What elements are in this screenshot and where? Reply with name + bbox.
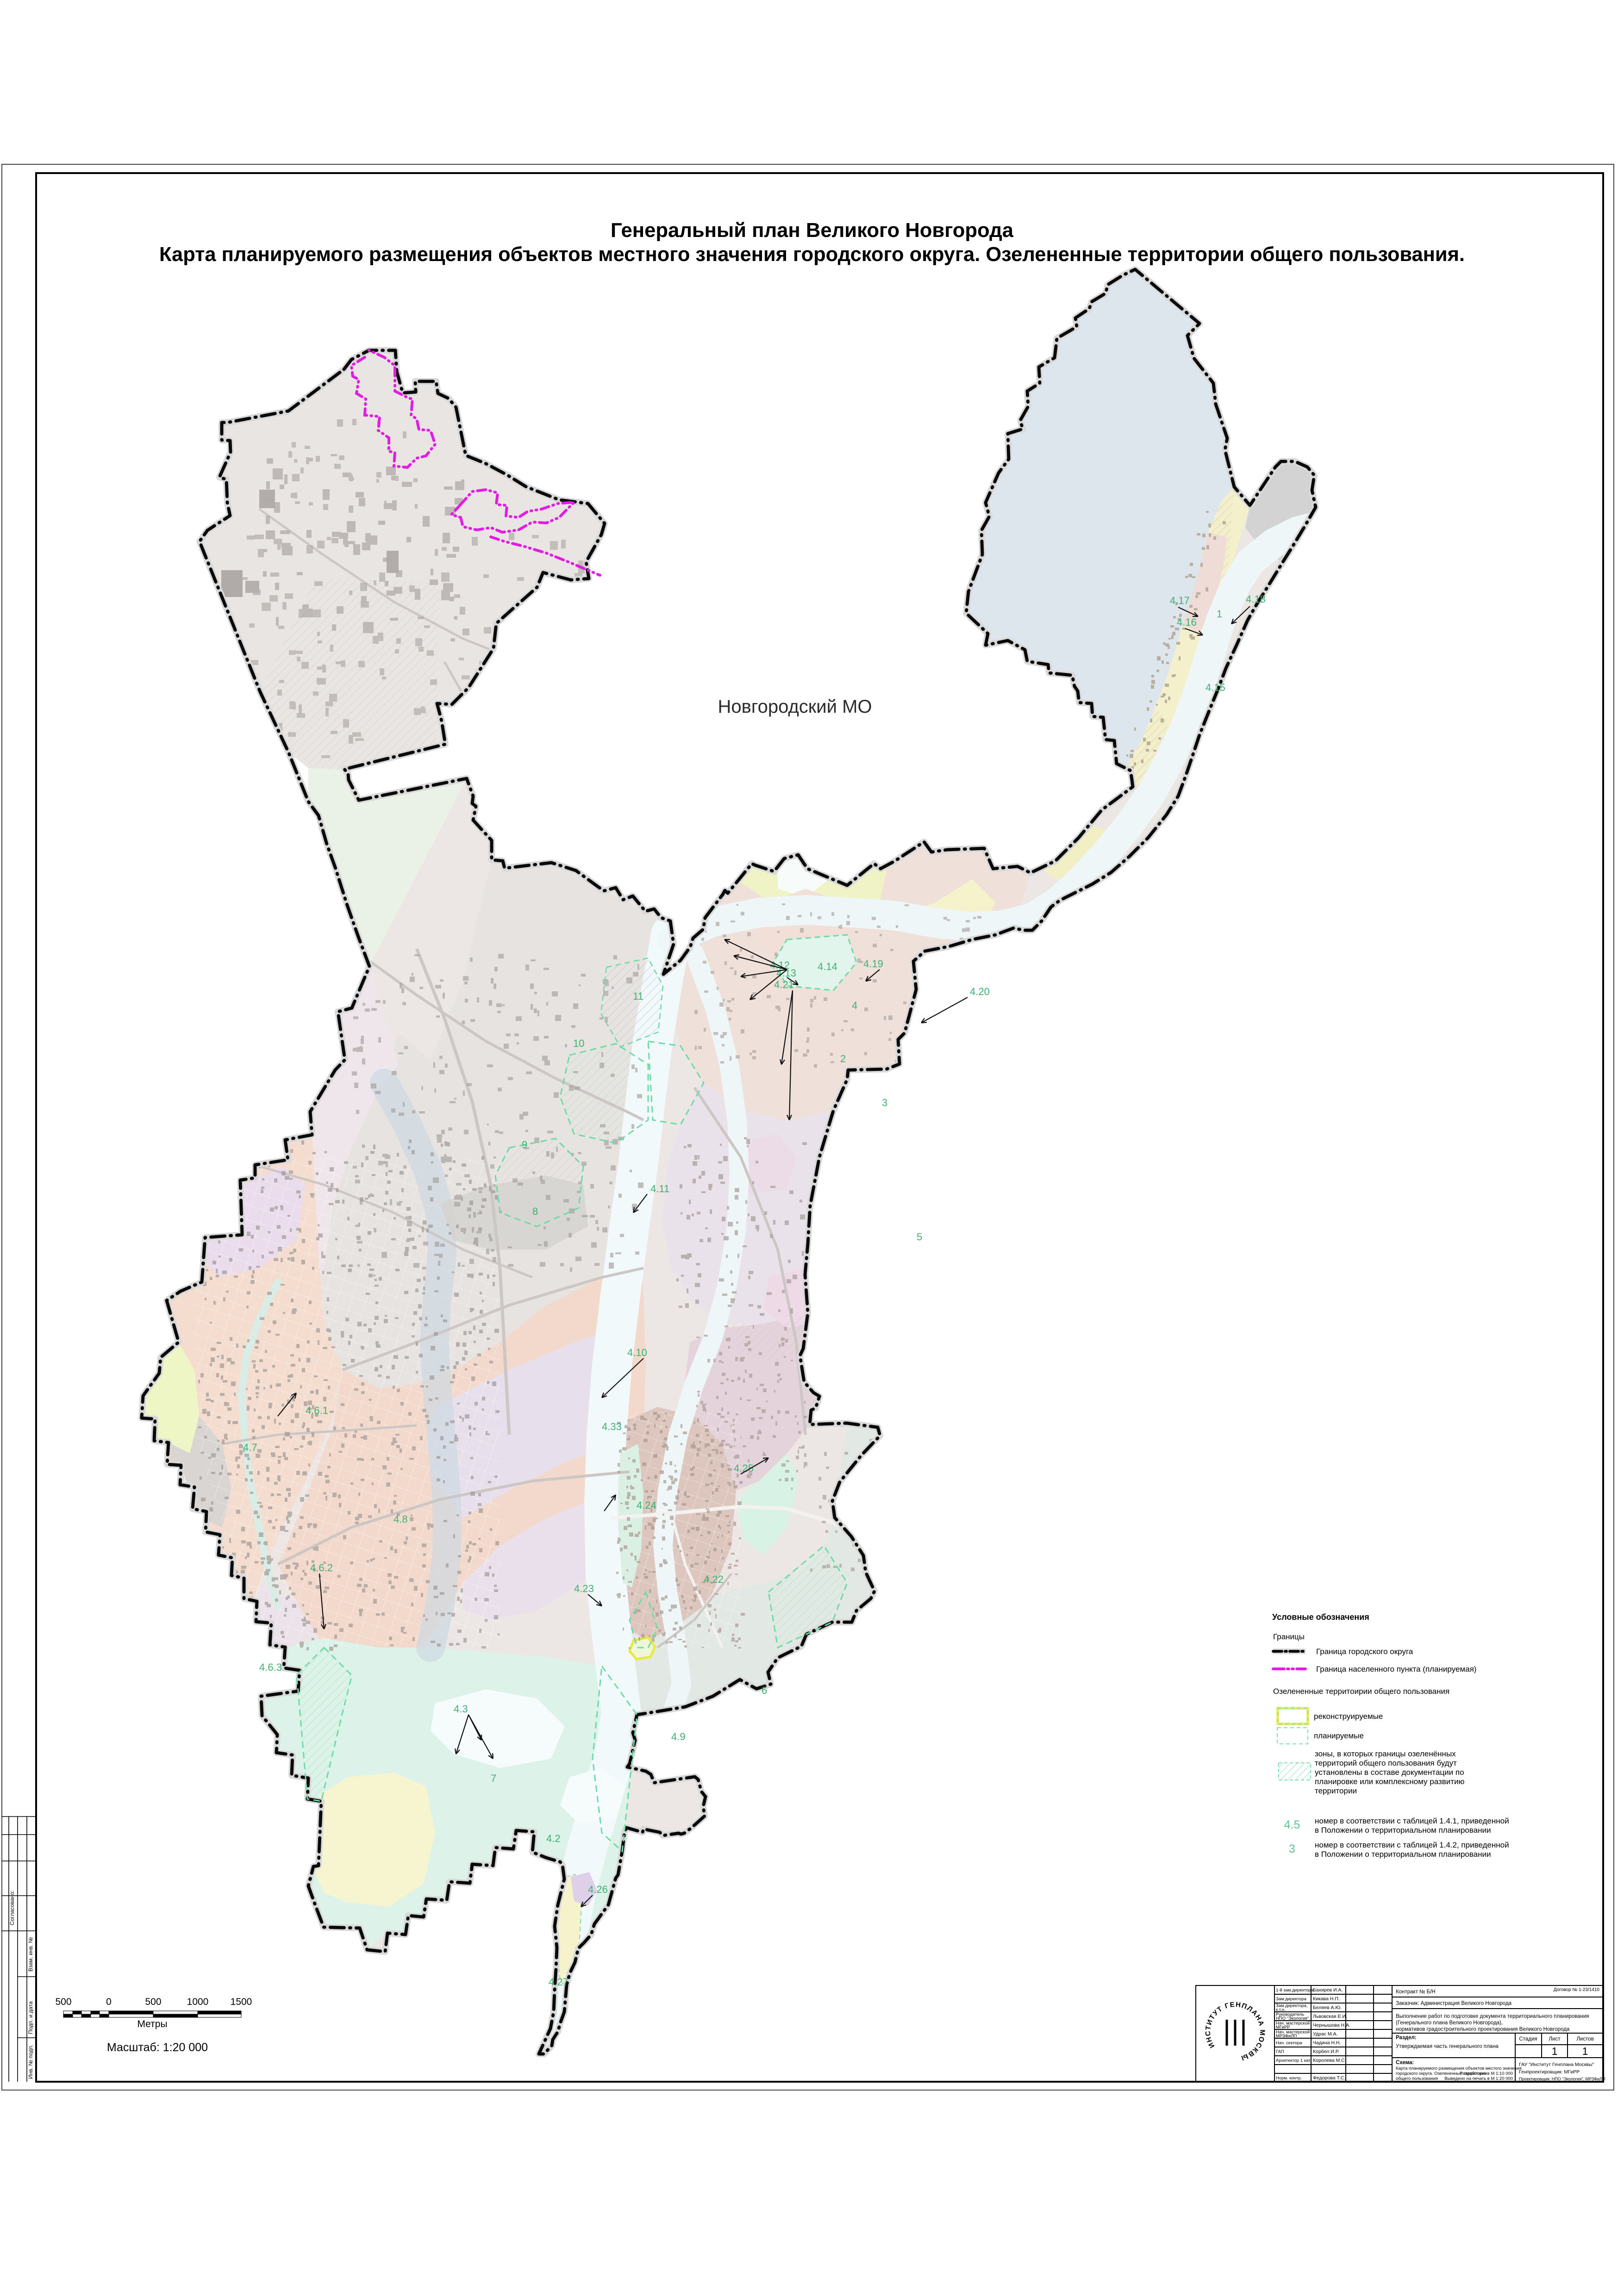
svg-text:Генпроектировщик: МГиРР: Генпроектировщик: МГиРР [1519, 2069, 1580, 2075]
svg-text:реконструируемые: реконструируемые [1314, 1712, 1383, 1721]
svg-text:в Положении о территориальном: в Положении о территориальном планирован… [1315, 1850, 1491, 1859]
svg-text:территории: территории [1315, 1786, 1357, 1795]
svg-text:Федорова Т.С.: Федорова Т.С. [1313, 2075, 1345, 2081]
svg-text:1000: 1000 [187, 1997, 209, 2007]
svg-text:Границы: Границы [1273, 1632, 1305, 1641]
svg-text:Королева М.С.: Королева М.С. [1313, 2058, 1346, 2063]
svg-text:Граница городского округа: Граница городского округа [1316, 1647, 1413, 1656]
svg-text:Корбел И.Р.: Корбел И.Р. [1313, 2049, 1339, 2054]
svg-text:Бахирев И.А.: Бахирев И.А. [1313, 1987, 1343, 1993]
svg-text:Удрас М.А.: Удрас М.А. [1313, 2031, 1337, 2037]
svg-text:установлены в составе документ: установлены в составе документации по [1315, 1768, 1464, 1777]
svg-text:Нач. сектора: Нач. сектора [1276, 2041, 1302, 2046]
svg-text:Подп. и дата: Подп. и дата [27, 2001, 34, 2034]
svg-text:МРЗФиЛП: МРЗФиЛП [1276, 2034, 1297, 2039]
svg-text:500: 500 [145, 1997, 161, 2007]
svg-text:планировке или комплексному ра: планировке или комплексному развитию [1315, 1777, 1465, 1786]
svg-text:Договор № 1-23/1410: Договор № 1-23/1410 [1554, 1987, 1600, 1992]
svg-text:1-й зам.директора: 1-й зам.директора [1276, 1988, 1314, 1993]
svg-text:нормативов градостроительного: нормативов градостроительного проектиров… [1396, 2027, 1570, 2032]
svg-text:номер в соответствии с таблице: номер в соответствии с таблицей 1.4.1, п… [1315, 1817, 1509, 1825]
svg-text:Кикава Н.П.: Кикава Н.П. [1313, 1996, 1340, 2002]
svg-text:зоны, в которых границы озелен: зоны, в которых границы озеленённых [1315, 1749, 1456, 1758]
svg-text:Лист: Лист [1549, 2036, 1561, 2042]
svg-text:ГАП: ГАП [1276, 2049, 1284, 2054]
svg-text:Схема:: Схема: [1396, 2060, 1414, 2066]
svg-text:общего пользования: общего пользования [1396, 2076, 1438, 2081]
svg-text:Зам.директора: Зам.директора [1276, 1997, 1307, 2002]
svg-text:Беляев А.Ю.: Беляев А.Ю. [1313, 2005, 1342, 2010]
svg-text:Разработано в М 1:10 000: Разработано в М 1:10 000 [1460, 2071, 1513, 2076]
svg-text:к.т.н.: к.т.н. [1276, 2007, 1286, 2012]
svg-text:Условные обозначения: Условные обозначения [1272, 1612, 1369, 1622]
svg-text:МГиРР: МГиРР [1276, 2025, 1290, 2030]
svg-text:Контракт № Б/Н: Контракт № Б/Н [1396, 1989, 1436, 1995]
svg-text:Раздел:: Раздел: [1396, 2035, 1417, 2041]
svg-text:Архитектор 1 кат.: Архитектор 1 кат. [1276, 2058, 1311, 2063]
svg-text:Листов: Листов [1576, 2036, 1593, 2042]
svg-text:(Генерального плана Великого Н: (Генерального плана Великого Новгорода), [1396, 2020, 1503, 2026]
svg-text:номер в соответствии с таблице: номер в соответствии с таблицей 1.4.2, п… [1315, 1841, 1509, 1849]
svg-text:Выполнение работ по подготовке: Выполнение работ по подготовке документа… [1396, 2014, 1589, 2019]
svg-text:Утверждаемая часть генеральног: Утверждаемая часть генерального плана [1396, 2044, 1499, 2049]
svg-text:4.5: 4.5 [1284, 1818, 1300, 1831]
svg-text:Выведено на печать в М 1:20 00: Выведено на печать в М 1:20 000 [1444, 2076, 1513, 2081]
svg-text:Согласовано:: Согласовано: [9, 1891, 15, 1926]
svg-text:Метры: Метры [137, 2019, 167, 2029]
svg-text:Карта планируемого размещения: Карта планируемого размещения объектов м… [159, 243, 1465, 266]
svg-text:Норм. контр.: Норм. контр. [1276, 2076, 1302, 2081]
svg-text:Озелененные территоирии общего: Озелененные территоирии общего пользован… [1273, 1687, 1449, 1696]
svg-text:0: 0 [106, 1997, 112, 2007]
svg-text:Масштаб: 1:20 000: Масштаб: 1:20 000 [107, 2041, 208, 2054]
svg-text:Взам. инв. №: Взам. инв. № [27, 1937, 34, 1972]
svg-text:1: 1 [1552, 2045, 1558, 2057]
svg-text:1: 1 [1582, 2045, 1588, 2057]
svg-text:Чадина Н.Н.: Чадина Н.Н. [1313, 2040, 1341, 2046]
svg-text:1500: 1500 [231, 1997, 252, 2007]
svg-text:500: 500 [55, 1997, 71, 2007]
svg-text:территорий общего пользования: территорий общего пользования будут [1315, 1759, 1457, 1767]
svg-text:планируемые: планируемые [1314, 1731, 1364, 1740]
svg-text:3: 3 [1289, 1842, 1295, 1855]
svg-text:Генеральный план Великого Новг: Генеральный план Великого Новгорода [611, 219, 1014, 242]
svg-text:Стадия: Стадия [1519, 2036, 1537, 2042]
svg-text:Заказчик: Администрация Велико: Заказчик: Администрация Великого Новгоро… [1396, 2001, 1512, 2006]
svg-text:Чернышова Н.А.: Чернышова Н.А. [1313, 2022, 1350, 2028]
svg-text:в Положении о территориальном: в Положении о территориальном планирован… [1315, 1826, 1491, 1835]
svg-text:НПО “Экология”: НПО “Экология” [1276, 2016, 1309, 2021]
svg-text:Карта планируемого размещения: Карта планируемого размещения объектов м… [1396, 2066, 1522, 2071]
svg-text:Граница населенного пункта (пл: Граница населенного пункта (планируемая) [1316, 1665, 1476, 1674]
svg-text:Львовская Е.И.: Львовская Е.И. [1313, 2014, 1347, 2019]
svg-text:Инв. № подп.: Инв. № подп. [27, 2045, 34, 2079]
svg-text:Проектировщик: НПО "Экология",: Проектировщик: НПО "Экология", МРЗФиЛП [1519, 2077, 1605, 2081]
svg-text:ГАУ "Институт Генплана Москвы": ГАУ "Институт Генплана Москвы" [1519, 2062, 1594, 2067]
